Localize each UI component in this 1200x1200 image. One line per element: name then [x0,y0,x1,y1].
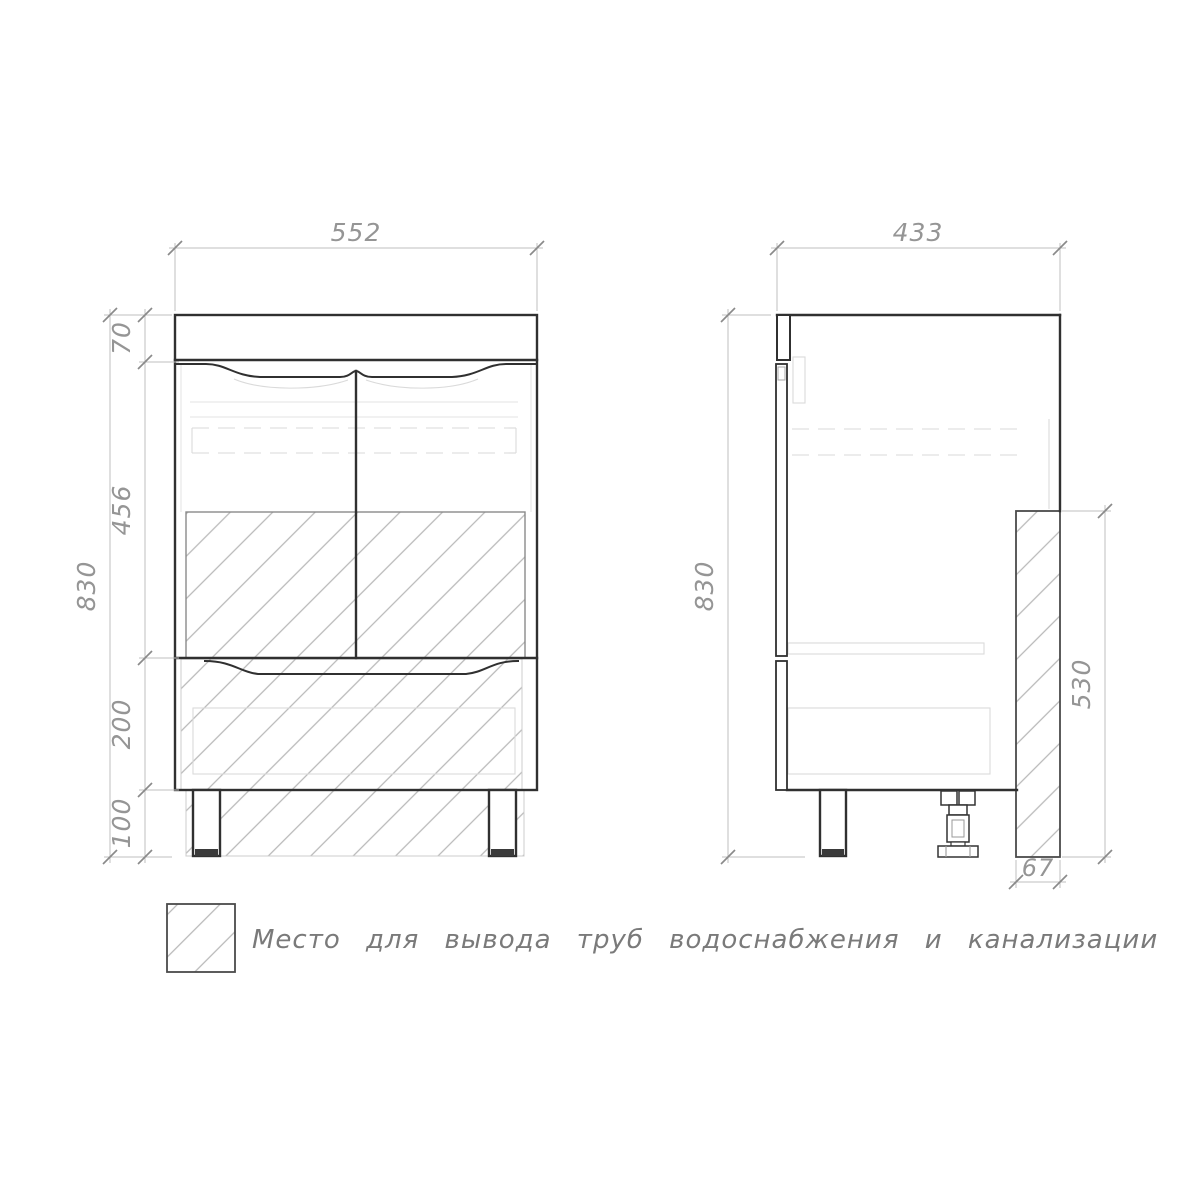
legend: Место для вывода труб водоснабжения и ка… [167,904,1158,972]
front-leg-left-pad [195,849,218,856]
front-leg-right [489,790,516,856]
front-dim-chain: 70 456 200 100 [107,308,179,864]
side-dim-depth: 433 [770,218,1067,311]
hinge-hidden-outline [793,357,805,403]
adjustable-foot [936,790,980,857]
front-dim-total-height: 830 [72,308,172,864]
side-dim-pipe-zone-height: 530 [1062,504,1112,864]
side-hidden-lines [788,357,1049,774]
front-dim-drawer-section-label: 200 [107,699,136,750]
front-dim-leg-height-label: 100 [107,798,136,849]
vanity-cabinet-drawing: 552 830 70 456 200 100 [0,0,1200,1200]
side-dim-depth-label: 433 [893,218,944,247]
pipe-zone-hatch-back [1016,511,1060,857]
side-view: 433 830 530 67 [690,218,1112,889]
foot-nut-left [941,791,957,805]
drawer-rail-hidden-outline [788,643,984,654]
foot-nut-right [959,791,975,805]
drawer-box-hidden-outline [788,708,990,774]
front-dim-width: 552 [168,218,544,311]
front-dim-door-section-label: 456 [107,485,136,536]
sink-inner-curve-right [366,379,478,388]
side-dim-pipe-zone-depth-label: 67 [1022,854,1055,882]
side-dim-total-height-label: 830 [690,561,719,612]
pipe-zone-hatch-drawer [181,659,522,790]
legend-hatch-swatch [167,904,235,972]
foot-base [938,846,978,857]
side-dim-pipe-zone-depth: 67 [1009,854,1067,889]
front-view: 552 830 70 456 200 100 [72,218,544,864]
side-leg-pad [822,849,844,856]
foot-stem [949,805,967,815]
legend-text: Место для вывода труб водоснабжения и ка… [252,925,1158,955]
drawer-front-profile [776,661,787,790]
side-dim-pipe-zone-height-label: 530 [1067,659,1096,710]
front-dim-top-section-label: 70 [107,321,136,355]
front-dim-total-height-label: 830 [72,561,101,612]
door-profile [776,364,787,656]
side-leg-front [820,790,846,856]
front-dim-width-label: 552 [331,218,382,247]
side-leg [820,790,846,856]
sink-inner-curve-left [234,379,348,388]
technical-drawing-page: 552 830 70 456 200 100 [0,0,1200,1200]
front-leg-right-pad [491,849,514,856]
front-leg-left [193,790,220,856]
foot-body [947,815,969,842]
countertop-profile [777,315,790,360]
pipe-zone-hatch-under-cabinet [186,790,524,856]
